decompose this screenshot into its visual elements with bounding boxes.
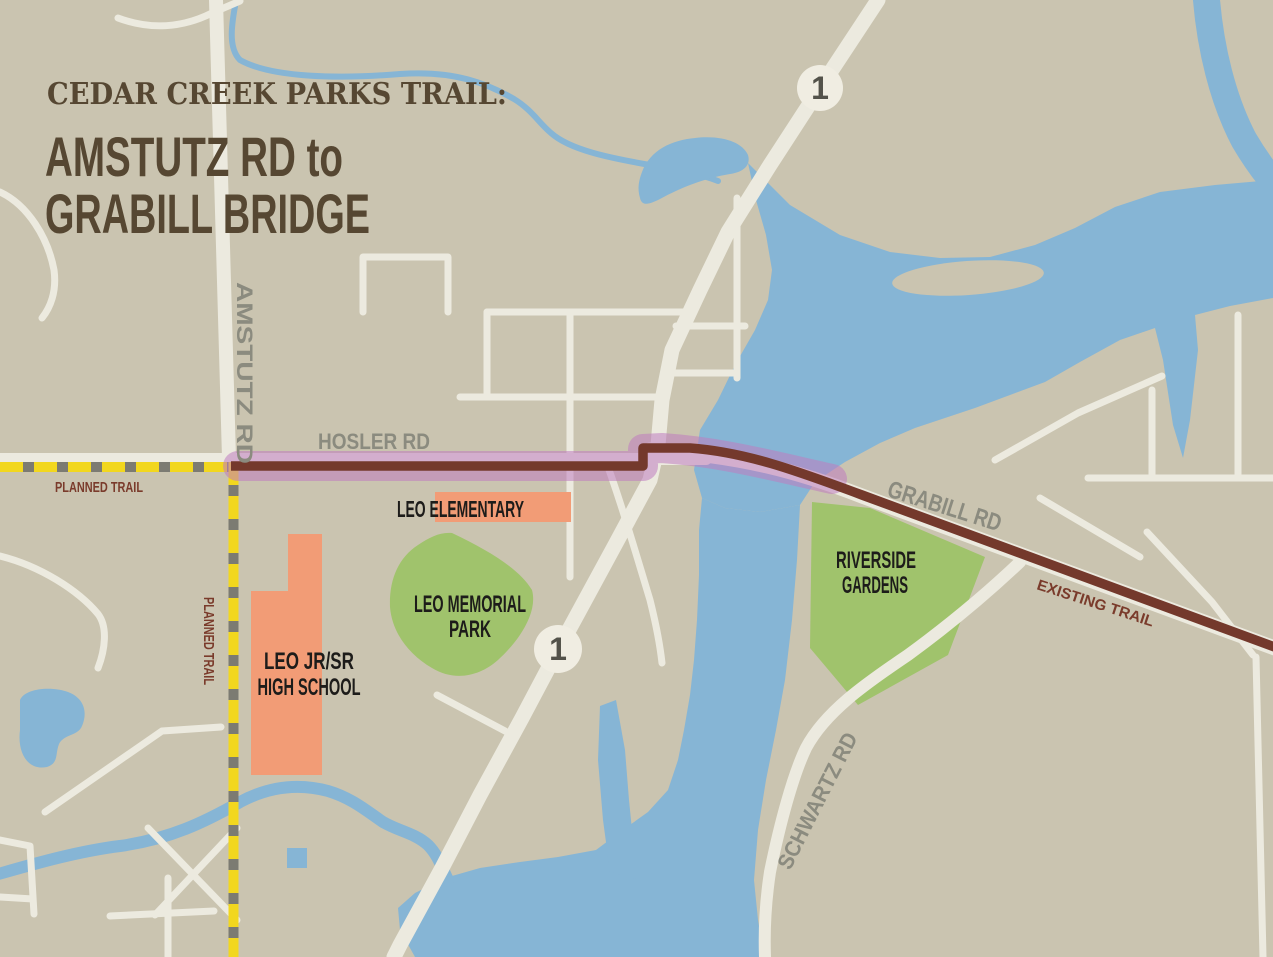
map-title-kicker: CEDAR CREEK PARKS TRAIL: bbox=[47, 77, 507, 112]
highway-shield-north: 1 bbox=[797, 65, 843, 111]
water-small-pond bbox=[287, 848, 307, 868]
trail-label-planned-vertical: PLANNED TRAIL bbox=[200, 597, 217, 685]
place-label-leo-memorial-line2: PARK bbox=[449, 616, 491, 643]
place-label-riverside-line1: RIVERSIDE bbox=[836, 547, 916, 574]
map-title-line2: GRABILL BRIDGE bbox=[45, 182, 370, 245]
highway-shield-south: 1 bbox=[534, 625, 582, 673]
road-minor bbox=[0, 897, 33, 899]
trail-label-planned-horizontal: PLANNED TRAIL bbox=[55, 479, 143, 496]
place-label-riverside-line2: GARDENS bbox=[842, 572, 908, 599]
place-label-leo-elementary: LEO ELEMENTARY bbox=[397, 496, 524, 522]
map-title-line1: AMSTUTZ RD to bbox=[45, 125, 343, 188]
shield-number: 1 bbox=[549, 631, 567, 667]
place-label-leo-memorial-line1: LEO MEMORIAL bbox=[414, 591, 526, 618]
shield-number: 1 bbox=[811, 70, 829, 106]
road-label-amstutz: AMSTUTZ RD bbox=[232, 282, 257, 464]
road-label-hosler: HOSLER RD bbox=[318, 429, 430, 454]
place-label-high-school-line1: LEO JR/SR bbox=[264, 648, 354, 675]
trail-map: 1 1 CEDAR CREEK PARKS TRAIL: AMSTUTZ RD … bbox=[0, 0, 1273, 957]
place-label-high-school-line2: HIGH SCHOOL bbox=[258, 674, 361, 701]
